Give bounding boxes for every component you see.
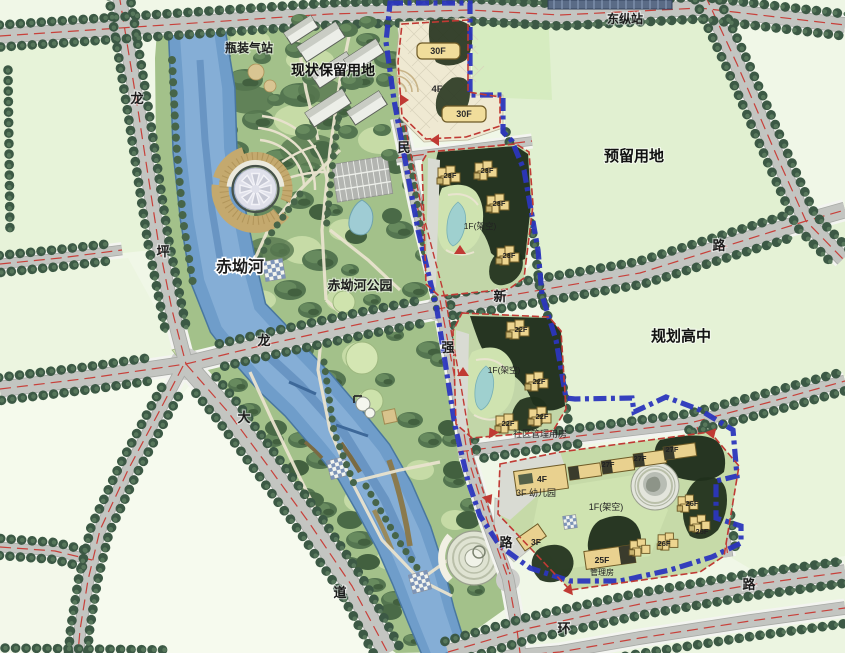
svg-text:4F: 4F — [431, 84, 442, 95]
svg-text:坪: 坪 — [156, 244, 169, 259]
svg-text:26F: 26F — [658, 539, 671, 548]
svg-text:东纵站: 东纵站 — [607, 11, 643, 26]
svg-text:规划高中: 规划高中 — [651, 327, 711, 345]
svg-text:1F(架空): 1F(架空) — [488, 365, 521, 375]
svg-text:龙: 龙 — [130, 91, 143, 106]
svg-text:路: 路 — [742, 577, 756, 592]
svg-text:3F 幼儿园: 3F 幼儿园 — [516, 487, 556, 498]
svg-text:23F: 23F — [444, 171, 457, 180]
svg-text:预留用地: 预留用地 — [604, 147, 664, 165]
svg-text:大: 大 — [237, 410, 250, 425]
svg-text:22F: 22F — [536, 412, 549, 421]
svg-text:赤坳河公园: 赤坳河公园 — [327, 278, 392, 293]
svg-text:环: 环 — [557, 621, 570, 636]
svg-text:30F: 30F — [430, 46, 446, 56]
svg-text:1F(架空): 1F(架空) — [589, 501, 624, 512]
svg-text:22F: 22F — [502, 419, 515, 428]
svg-text:25F: 25F — [595, 555, 610, 565]
svg-text:现状保留用地: 现状保留用地 — [291, 62, 375, 78]
svg-text:瓶装气站: 瓶装气站 — [225, 40, 273, 55]
svg-text:26F: 26F — [686, 499, 699, 508]
svg-text:22F: 22F — [515, 325, 528, 334]
svg-text:3F: 3F — [531, 537, 541, 547]
svg-text:强: 强 — [441, 340, 454, 355]
svg-text:赤坳河: 赤坳河 — [216, 257, 264, 276]
svg-text:26F: 26F — [696, 527, 709, 536]
svg-text:1F(架空): 1F(架空) — [464, 221, 497, 231]
svg-text:路: 路 — [499, 535, 513, 550]
svg-text:27F: 27F — [666, 445, 679, 454]
svg-text:龙: 龙 — [257, 333, 270, 348]
svg-text:4F: 4F — [537, 474, 547, 484]
svg-text:路: 路 — [712, 238, 726, 253]
svg-text:23F: 23F — [493, 199, 506, 208]
svg-text:道: 道 — [333, 585, 346, 600]
svg-text:27F: 27F — [602, 460, 615, 469]
svg-text:23F: 23F — [481, 166, 494, 175]
svg-text:新: 新 — [493, 289, 506, 304]
svg-text:管理房: 管理房 — [590, 567, 614, 577]
svg-text:30F: 30F — [456, 109, 472, 119]
svg-text:22F: 22F — [533, 377, 546, 386]
svg-text:民: 民 — [397, 140, 410, 155]
svg-text:23F: 23F — [503, 251, 516, 260]
svg-text:27F: 27F — [634, 454, 647, 463]
